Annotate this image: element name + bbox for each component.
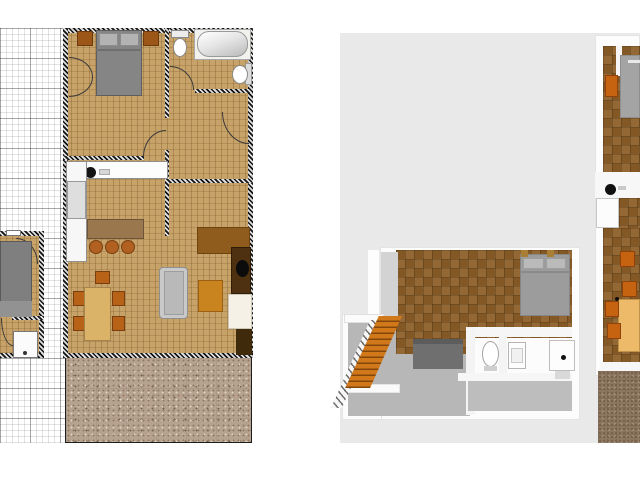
bath-wall-top: [466, 327, 572, 337]
aerial-3d-view[interactable]: [0, 0, 640, 480]
wall-white-left: [367, 249, 380, 321]
sofa-3d: [413, 344, 463, 369]
building2-floor-mid: [619, 198, 640, 228]
apron-concrete: [468, 381, 572, 411]
floor-plan-app-window: [0, 0, 640, 480]
sink-3d-basin: [511, 348, 523, 363]
building2-table: [618, 299, 640, 352]
building2-cooktop-knobs: [618, 186, 626, 190]
washer-3d-base: [555, 371, 570, 379]
building2-small-dot: [615, 297, 619, 301]
bed-3d-post-right: [547, 250, 554, 257]
building2-cooktop: [605, 184, 616, 195]
wall-gray-upper: [381, 252, 398, 320]
building2-bed-line: [628, 60, 640, 63]
building2-counter: [596, 198, 619, 228]
building2-chair-4: [622, 281, 637, 297]
toilet-3d: [482, 341, 499, 367]
bed-3d-pillow-right: [546, 258, 566, 269]
building2-bed: [620, 55, 640, 118]
bed-3d-fold: [520, 271, 570, 273]
building2-chair-3: [607, 323, 621, 339]
building2-chair-1: [620, 251, 635, 267]
building2-chair-2: [605, 301, 619, 317]
bed-3d-post-left: [521, 250, 528, 257]
bed-3d-pillow-left: [523, 258, 544, 269]
toilet-3d-shadow: [484, 366, 497, 371]
building2-orange-chair: [605, 75, 618, 97]
building2-terrace: [598, 371, 640, 443]
washer-3d-dot: [561, 355, 566, 360]
building2-kitchen-white: [595, 172, 640, 198]
